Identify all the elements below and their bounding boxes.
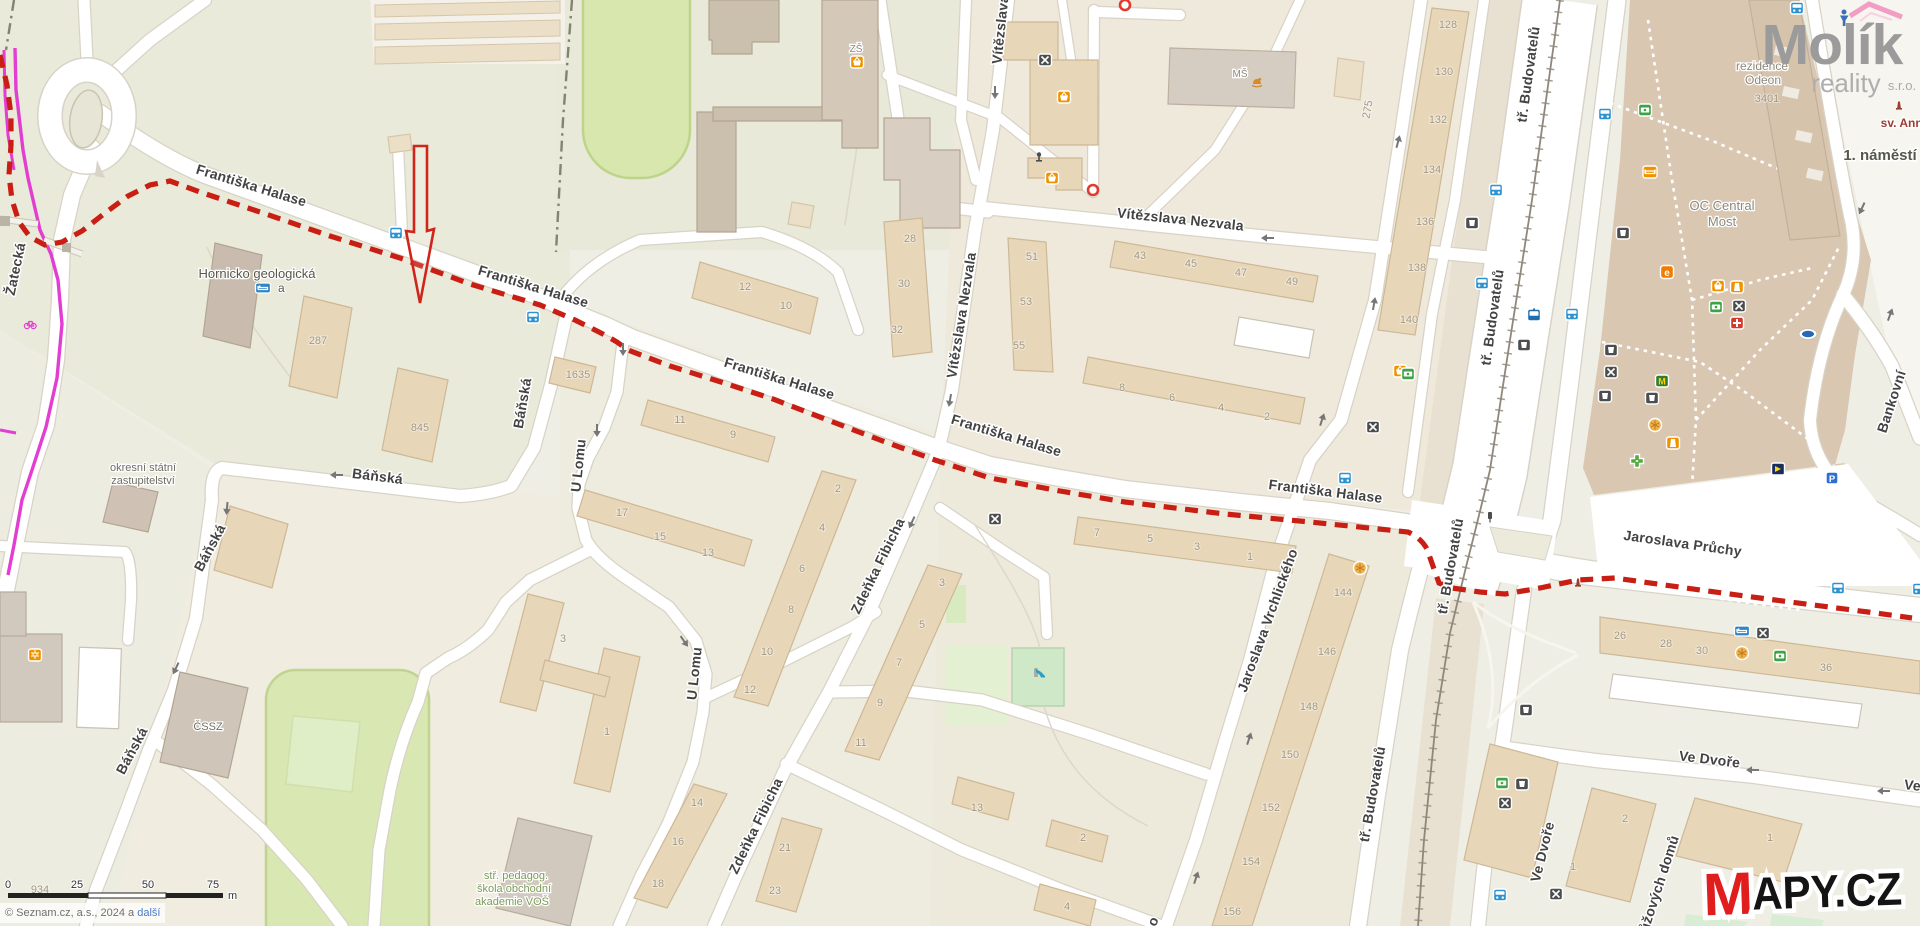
svg-text:21: 21 (779, 842, 791, 854)
svg-text:m: m (228, 890, 237, 902)
svg-text:152: 152 (1262, 802, 1280, 814)
svg-text:3: 3 (560, 633, 566, 645)
svg-text:17: 17 (616, 507, 628, 519)
svg-text:13: 13 (971, 802, 983, 814)
svg-text:3: 3 (1194, 541, 1200, 553)
svg-text:11: 11 (674, 414, 685, 426)
svg-text:32: 32 (891, 324, 903, 336)
svg-text:16: 16 (672, 836, 684, 848)
svg-text:1: 1 (1570, 861, 1576, 873)
svg-text:156: 156 (1223, 906, 1241, 918)
svg-text:10: 10 (761, 646, 773, 658)
svg-text:36: 36 (1820, 662, 1832, 674)
svg-text:132: 132 (1429, 114, 1447, 126)
svg-text:s.r.o.: s.r.o. (1888, 78, 1916, 93)
svg-text:43: 43 (1134, 250, 1146, 262)
svg-text:Ve: Ve (1903, 776, 1920, 794)
svg-text:18: 18 (652, 878, 664, 890)
svg-text:47: 47 (1235, 267, 1247, 279)
svg-text:7: 7 (896, 657, 902, 669)
svg-text:11: 11 (855, 737, 866, 749)
svg-text:M: M (1702, 860, 1754, 926)
svg-text:75: 75 (207, 879, 219, 891)
svg-text:MŠ: MŠ (1233, 67, 1248, 80)
svg-text:1635: 1635 (566, 369, 590, 381)
svg-text:845: 845 (411, 422, 429, 434)
svg-text:144: 144 (1334, 587, 1352, 599)
svg-text:12: 12 (744, 684, 756, 696)
svg-text:sv. Anna: sv. Anna (1881, 116, 1920, 130)
svg-text:140: 140 (1400, 314, 1418, 326)
svg-text:146: 146 (1318, 646, 1336, 658)
svg-text:8: 8 (788, 604, 794, 616)
svg-text:ZŠ: ZŠ (850, 42, 863, 55)
svg-text:53: 53 (1020, 296, 1032, 308)
svg-text:50: 50 (142, 879, 154, 891)
svg-text:136: 136 (1416, 216, 1434, 228)
svg-text:1: 1 (1767, 832, 1773, 844)
svg-text:2: 2 (1080, 832, 1086, 844)
svg-text:škola obchodní: škola obchodní (477, 883, 551, 895)
svg-text:9: 9 (877, 697, 883, 709)
svg-text:© Seznam.cz, a.s., 2024 a dalš: © Seznam.cz, a.s., 2024 a další (5, 907, 160, 919)
svg-text:reality: reality (1811, 68, 1880, 98)
svg-text:30: 30 (1696, 645, 1708, 657)
svg-text:4: 4 (819, 522, 825, 534)
svg-text:14: 14 (691, 797, 703, 809)
svg-text:stř. pedagog.: stř. pedagog. (484, 870, 548, 882)
svg-text:2: 2 (835, 483, 841, 495)
svg-text:4: 4 (1064, 901, 1070, 913)
svg-text:150: 150 (1281, 749, 1299, 761)
svg-text:5: 5 (1147, 533, 1153, 545)
svg-text:6: 6 (799, 563, 805, 575)
svg-text:9: 9 (730, 429, 736, 441)
svg-text:51: 51 (1026, 251, 1038, 263)
svg-text:12: 12 (739, 281, 751, 293)
svg-text:1: 1 (1247, 551, 1253, 563)
svg-text:3401: 3401 (1755, 93, 1779, 105)
svg-text:154: 154 (1242, 856, 1260, 868)
svg-text:Hornicko geologická: Hornicko geologická (198, 266, 316, 281)
svg-text:OC Central: OC Central (1689, 198, 1754, 213)
svg-text:Most: Most (1708, 214, 1737, 229)
svg-text:0: 0 (5, 879, 11, 891)
svg-text:akademie VOŠ: akademie VOŠ (475, 895, 549, 908)
svg-text:28: 28 (1660, 638, 1672, 650)
svg-text:128: 128 (1439, 19, 1457, 31)
svg-text:138: 138 (1408, 262, 1426, 274)
svg-text:1. náměstí: 1. náměstí (1843, 147, 1917, 164)
svg-text:49: 49 (1286, 276, 1298, 288)
svg-text:23: 23 (769, 885, 781, 897)
svg-text:25: 25 (71, 879, 83, 891)
svg-text:ČSSZ: ČSSZ (193, 720, 223, 733)
svg-text:okresní státní: okresní státní (110, 462, 176, 474)
svg-text:287: 287 (309, 335, 327, 347)
svg-text:2: 2 (1264, 411, 1270, 423)
svg-text:28: 28 (904, 233, 916, 245)
svg-text:8: 8 (1119, 382, 1125, 394)
svg-text:15: 15 (654, 531, 666, 543)
svg-text:13: 13 (702, 547, 714, 559)
svg-text:148: 148 (1300, 701, 1318, 713)
svg-text:1: 1 (604, 726, 610, 738)
svg-text:a: a (278, 281, 285, 295)
svg-text:6: 6 (1169, 392, 1175, 404)
svg-text:45: 45 (1185, 258, 1197, 270)
svg-text:10: 10 (780, 300, 792, 312)
svg-text:2: 2 (1622, 813, 1628, 825)
svg-text:7: 7 (1094, 527, 1100, 539)
svg-text:30: 30 (898, 278, 910, 290)
svg-text:134: 134 (1423, 164, 1441, 176)
svg-text:zastupitelství: zastupitelství (111, 475, 175, 487)
svg-text:26: 26 (1614, 630, 1626, 642)
svg-text:55: 55 (1013, 340, 1025, 352)
svg-text:130: 130 (1435, 66, 1453, 78)
svg-text:3: 3 (939, 577, 945, 589)
svg-text:4: 4 (1218, 402, 1224, 414)
svg-text:APY.CZ: APY.CZ (1751, 862, 1903, 919)
svg-text:5: 5 (919, 619, 925, 631)
